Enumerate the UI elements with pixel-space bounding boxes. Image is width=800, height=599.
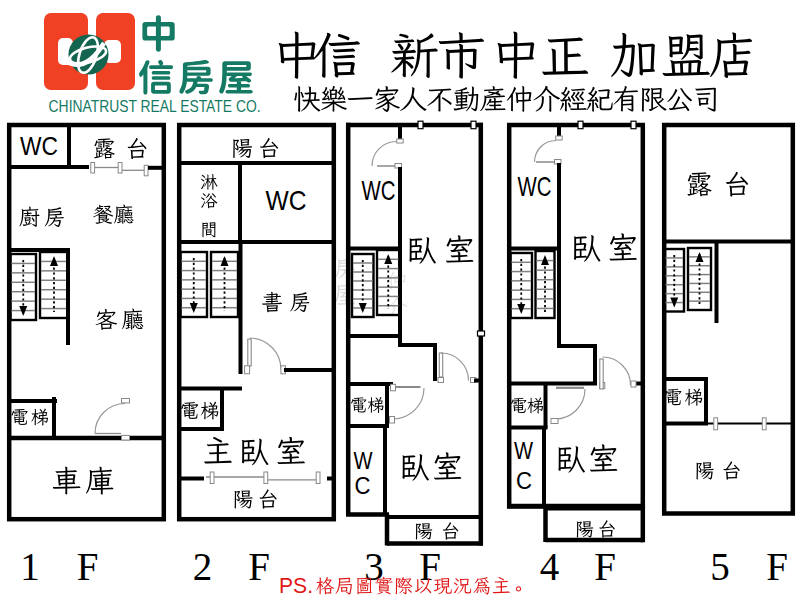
svg-text:5: 5 xyxy=(710,545,730,588)
svg-text:WC: WC xyxy=(362,175,396,206)
svg-text:C: C xyxy=(516,467,532,494)
svg-text:PS.: PS. xyxy=(279,573,313,598)
svg-text:WC: WC xyxy=(518,171,552,202)
svg-text:W: W xyxy=(354,447,373,474)
svg-text:3: 3 xyxy=(364,545,384,588)
svg-text:C: C xyxy=(355,472,371,499)
svg-text:WC: WC xyxy=(20,132,58,160)
svg-text:W: W xyxy=(514,437,533,464)
svg-text:F: F xyxy=(594,545,616,588)
svg-text:WC: WC xyxy=(266,185,307,216)
svg-text:F: F xyxy=(248,545,270,588)
svg-text:F: F xyxy=(77,545,99,588)
svg-text:4: 4 xyxy=(540,545,560,588)
svg-text:1: 1 xyxy=(20,545,40,588)
svg-text:CHINATRUST REAL ESTATE CO.: CHINATRUST REAL ESTATE CO. xyxy=(49,97,261,115)
svg-text:F: F xyxy=(766,545,788,588)
svg-text:2: 2 xyxy=(193,545,213,588)
